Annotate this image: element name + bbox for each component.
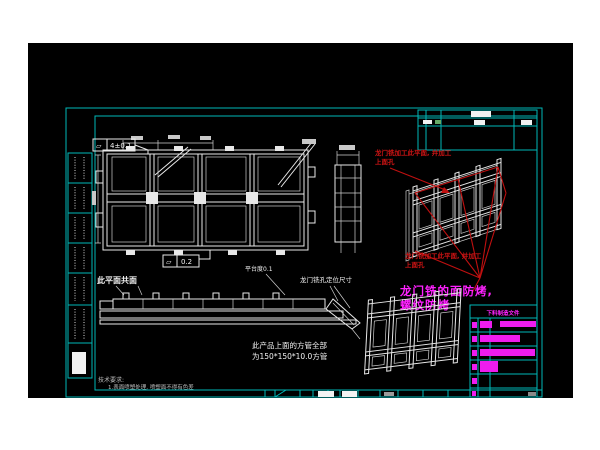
- revision-table: 下料制造文件: [470, 305, 537, 397]
- masked-cell-green: [435, 120, 441, 124]
- border-strip-left: [68, 153, 92, 378]
- gdt-frame-mid: ▱ 0.2: [163, 250, 210, 267]
- masked-cell: [318, 391, 334, 397]
- red-note-top-line1: 龙门铣加工此平面, 并加工: [374, 148, 452, 157]
- masked-entry: [480, 321, 492, 328]
- red-note-mid-line1: 龙门铣加工此平面, 并加工: [404, 251, 482, 260]
- hatched-panel: [112, 206, 146, 242]
- isometric-view-upper: [406, 158, 501, 261]
- masked-mark: [472, 336, 477, 342]
- elevation-view: [100, 293, 360, 339]
- masked-entry: [480, 361, 498, 372]
- tech-requirements-title: 技术要求:: [98, 376, 124, 384]
- masked-cell: [342, 391, 357, 397]
- product-note-line2: 为150*150*10.0方管: [252, 351, 328, 361]
- hatched-panel: [258, 206, 300, 242]
- product-note-line1: 此产品上面的方管全部: [252, 340, 327, 350]
- masked-dimension: [200, 136, 211, 140]
- coplanar-label: 此平面共面: [97, 275, 137, 285]
- plan-view: [92, 135, 316, 255]
- masked-mark: [472, 391, 476, 396]
- gdt-frame-top: ▱ 4±0.1: [93, 139, 148, 154]
- masked-mark: [472, 378, 477, 384]
- cad-viewport[interactable]: 下料制造文件: [28, 43, 573, 398]
- masked-cell: [471, 111, 491, 117]
- cad-drawing: 下料制造文件: [28, 43, 573, 398]
- masked-cell: [521, 120, 532, 125]
- hatched-panel: [206, 206, 246, 242]
- masked-mark: [472, 350, 477, 356]
- gantry-hole-dims-label: 龙门铣孔定位尺寸: [300, 275, 353, 284]
- masked-cell: [474, 120, 485, 125]
- red-note-top-line2: 上面孔: [375, 157, 395, 166]
- masked-mark: [472, 364, 477, 370]
- section-view: [335, 145, 361, 253]
- flatness-symbol: ▱: [166, 258, 172, 266]
- masked-entry: [500, 321, 536, 327]
- masked-entry: [480, 335, 520, 342]
- red-annotation-lines: [390, 167, 506, 293]
- revision-table-header: 下料制造文件: [486, 309, 520, 317]
- flatness-value: 4±0.1: [110, 142, 131, 150]
- masked-text: [384, 392, 394, 396]
- tech-requirements-item1: 1.表面喷塑处理, 喷塑面不得有色差: [108, 383, 194, 391]
- hatched-panel: [206, 157, 246, 191]
- masked-cell: [423, 120, 432, 124]
- masked-dimension: [339, 145, 355, 150]
- hatched-panel: [258, 157, 300, 191]
- title-block-strip: [255, 390, 542, 397]
- masked-dimension: [92, 191, 96, 205]
- hatched-panel: [112, 157, 146, 191]
- platform-flatness-label: 平台度0.1: [245, 265, 273, 273]
- masked-dimension: [168, 135, 180, 139]
- flatness-value: 0.2: [181, 258, 192, 266]
- masked-cell: [72, 352, 86, 374]
- masked-mark: [472, 322, 477, 328]
- red-note-mid-line2: 上面孔: [405, 260, 425, 269]
- flatness-symbol: ▱: [96, 142, 102, 150]
- hatched-panel: [158, 206, 194, 242]
- masked-dimension: [302, 139, 316, 144]
- masked-entry: [480, 349, 535, 356]
- masked-text: [528, 392, 536, 396]
